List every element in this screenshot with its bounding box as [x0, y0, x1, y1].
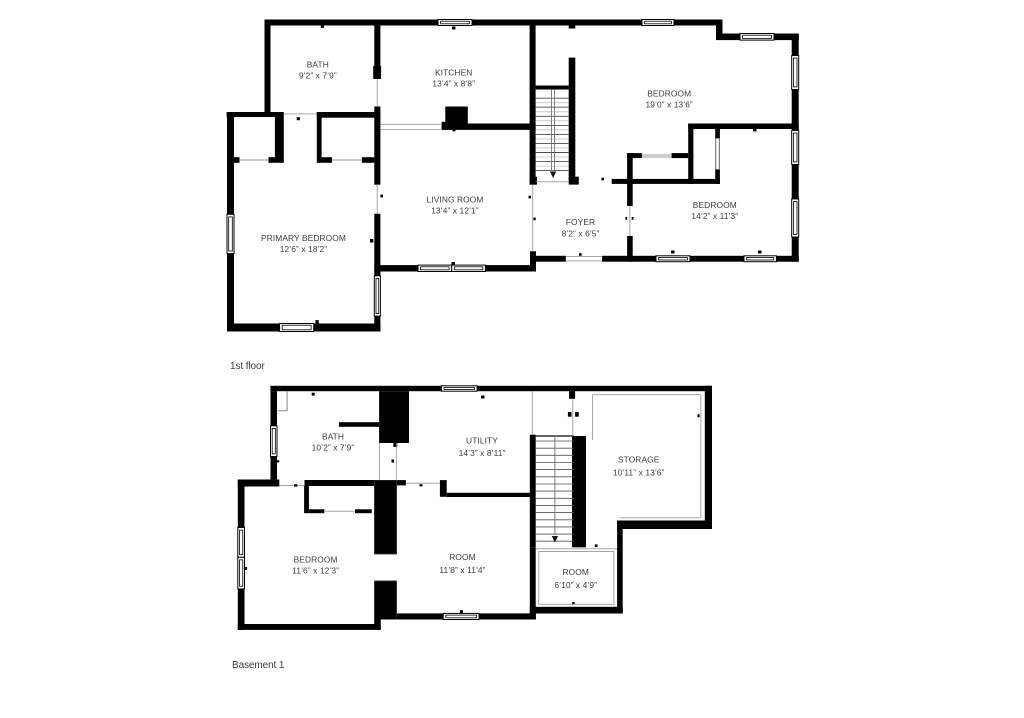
svg-text:BEDROOM: BEDROOM	[294, 555, 338, 565]
svg-text:BEDROOM: BEDROOM	[693, 200, 737, 210]
svg-text:PRIMARY BEDROOM: PRIMARY BEDROOM	[261, 233, 346, 243]
svg-text:STORAGE: STORAGE	[618, 454, 660, 464]
svg-text:Basement 1: Basement 1	[232, 660, 285, 671]
svg-text:FOYER: FOYER	[566, 217, 595, 227]
svg-text:14’2” x 11’3”: 14’2” x 11’3”	[691, 211, 738, 221]
svg-text:12’6” x 18’2”: 12’6” x 18’2”	[280, 244, 327, 254]
svg-text:LIVING ROOM: LIVING ROOM	[427, 195, 484, 205]
svg-text:14’3” x 8’11”: 14’3” x 8’11”	[459, 448, 506, 458]
svg-text:11’6” x 12’3”: 11’6” x 12’3”	[292, 566, 339, 576]
svg-text:BATH: BATH	[307, 60, 329, 70]
svg-text:19’0” x 13’6”: 19’0” x 13’6”	[646, 100, 693, 110]
svg-text:10’11” x 13’6”: 10’11” x 13’6”	[613, 467, 665, 477]
svg-text:10’2” x 7’9”: 10’2” x 7’9”	[312, 443, 355, 453]
svg-text:1st floor: 1st floor	[230, 361, 265, 372]
svg-text:UTILITY: UTILITY	[466, 436, 498, 446]
svg-text:BATH: BATH	[322, 432, 344, 442]
svg-text:6’10” x 4’9”: 6’10” x 4’9”	[554, 580, 597, 590]
svg-text:11’8” x 11’4”: 11’8” x 11’4”	[439, 565, 485, 575]
svg-text:BEDROOM: BEDROOM	[647, 89, 691, 99]
svg-text:ROOM: ROOM	[449, 552, 475, 562]
svg-text:ROOM: ROOM	[562, 567, 588, 577]
svg-text:13’4” x 12’1”: 13’4” x 12’1”	[431, 206, 478, 216]
svg-text:13’4” x 8’8”: 13’4” x 8’8”	[432, 79, 475, 89]
svg-text:8’2” x 6’5”: 8’2” x 6’5”	[562, 228, 600, 238]
svg-text:KITCHEN: KITCHEN	[435, 68, 472, 78]
svg-text:9’2” x 7’9”: 9’2” x 7’9”	[299, 71, 337, 81]
